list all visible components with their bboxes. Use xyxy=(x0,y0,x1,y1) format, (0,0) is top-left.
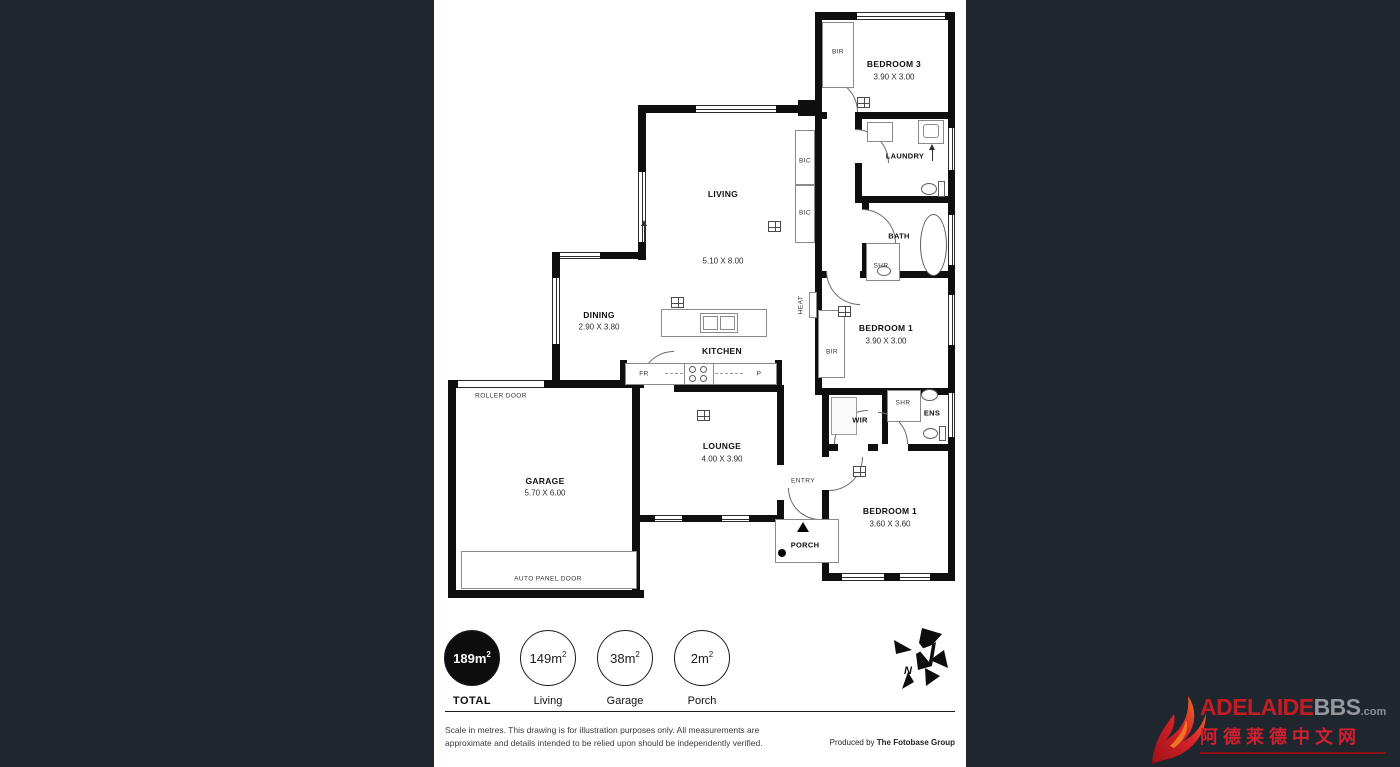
room-dims-bedroom1-upper: 3.90 X 3.00 xyxy=(866,337,907,346)
disclaimer-text: Scale in metres. This drawing is for ill… xyxy=(445,724,763,750)
room-label-laundry: LAUNDRY xyxy=(886,152,925,161)
wall xyxy=(798,100,822,116)
produced-by-prefix: Produced by xyxy=(830,738,877,747)
window xyxy=(948,128,955,170)
wall xyxy=(858,112,955,119)
window xyxy=(655,515,682,522)
arrow-head xyxy=(929,144,935,150)
room-dims-lounge: 4.00 X 3.90 xyxy=(702,455,743,464)
legend-label-living: Living xyxy=(520,695,576,707)
label-entry: ENTRY xyxy=(791,478,815,485)
burner xyxy=(689,366,696,373)
room-label-ens: ENS xyxy=(924,409,940,418)
window xyxy=(560,252,600,259)
legend-total: 189m2 TOTAL xyxy=(444,630,500,707)
room-label-bedroom1-upper: BEDROOM 1 xyxy=(859,323,913,333)
legend-circle-porch: 2m2 xyxy=(674,630,730,686)
wall xyxy=(868,444,878,451)
legend-value-porch: 2m xyxy=(691,651,709,666)
legend-porch: 2m2 Porch xyxy=(674,630,730,707)
label-bic-lower: BIC xyxy=(799,210,811,217)
heat-vent-icon xyxy=(838,306,851,317)
room-dims-living: 5.10 X 8.00 xyxy=(703,257,744,266)
toilet-tank-ens xyxy=(939,426,946,441)
wall xyxy=(908,444,955,451)
footer-divider xyxy=(445,711,955,712)
room-label-bedroom3: BEDROOM 3 xyxy=(867,59,921,69)
window xyxy=(552,278,560,344)
legend-circle-garage: 38m2 xyxy=(597,630,653,686)
legend-sup: 2 xyxy=(709,650,713,659)
legend-living: 149m2 Living xyxy=(520,630,576,707)
window xyxy=(900,573,930,581)
room-dims-garage: 5.70 X 6.00 xyxy=(525,489,566,498)
entry-arrow xyxy=(797,522,809,532)
label-porch: PORCH xyxy=(791,541,820,550)
legend-sup: 2 xyxy=(635,650,639,659)
room-label-kitchen: KITCHEN xyxy=(702,346,742,356)
roller-door-opening xyxy=(458,380,544,388)
burner xyxy=(700,366,707,373)
room-label-lounge: LOUNGE xyxy=(703,441,741,451)
room-dims-bedroom1-lower: 3.60 X 3.60 xyxy=(870,520,911,529)
producer-name: The Fotobase Group xyxy=(877,738,955,747)
label-roller-door: ROLLER DOOR xyxy=(475,393,527,400)
legend-circle-living: 149m2 xyxy=(520,630,576,686)
legend-sup: 2 xyxy=(486,650,490,659)
sink-bowl xyxy=(703,316,718,330)
wall xyxy=(674,385,784,392)
legend-value-living: 149m xyxy=(530,651,563,666)
wall xyxy=(777,385,784,465)
room-label-garage: GARAGE xyxy=(525,476,564,486)
room-dims-bedroom3: 3.90 X 3.00 xyxy=(874,73,915,82)
arrow-head xyxy=(641,220,647,226)
compass-icon: N xyxy=(892,626,948,690)
legend-value-total: 189m xyxy=(453,651,486,666)
label-fridge: FR xyxy=(639,371,648,378)
trough-bowl xyxy=(923,124,939,138)
legend-value-garage: 38m xyxy=(610,651,635,666)
toilet-tank xyxy=(938,181,945,197)
logo-wordmark: ADELAIDEBBS.com xyxy=(1200,694,1386,721)
logo-bbs: BBS xyxy=(1314,694,1361,720)
legend-label-total: TOTAL xyxy=(444,695,500,707)
label-bic-upper: BIC xyxy=(799,158,811,165)
bathtub xyxy=(920,214,947,276)
flame-icon xyxy=(1146,688,1208,766)
disclaimer-line2: approximate and details intended to be r… xyxy=(445,737,763,750)
cooktop xyxy=(684,363,714,385)
robe-bedroom1 xyxy=(818,310,845,378)
room-label-dining: DINING xyxy=(583,310,615,320)
window xyxy=(948,215,955,265)
logo-chinese-tagline: 阿德莱德中文网 xyxy=(1200,723,1386,754)
window xyxy=(696,105,776,113)
heat-vent-icon xyxy=(768,221,781,232)
label-bir-bedroom3: BIR xyxy=(832,49,844,56)
heater-unit xyxy=(809,292,817,318)
label-shr-ens: SHR xyxy=(896,400,911,407)
sink-bowl xyxy=(720,316,735,330)
legend-circle-total: 189m2 xyxy=(444,630,500,686)
toilet-ens xyxy=(923,428,938,439)
disclaimer-line1: Scale in metres. This drawing is for ill… xyxy=(445,724,763,737)
arrow-stem xyxy=(932,150,933,161)
porch-light-dot xyxy=(778,549,786,557)
logo-adelaide: ADELAIDE xyxy=(1200,694,1314,720)
door-arc xyxy=(826,271,860,305)
room-label-bath: BATH xyxy=(888,232,909,241)
wall xyxy=(448,380,456,598)
floorplan-sheet: LIVING 5.10 X 8.00 DINING 2.90 X 3.80 KI… xyxy=(434,0,966,767)
wall xyxy=(448,590,644,598)
room-label-wir: WIR xyxy=(852,416,867,425)
legend-garage: 38m2 Garage xyxy=(597,630,653,707)
heat-vent-icon xyxy=(853,466,866,477)
heat-vent-icon xyxy=(697,410,710,421)
room-label-bedroom1-lower: BEDROOM 1 xyxy=(863,506,917,516)
wall xyxy=(855,112,862,130)
auto-panel-door xyxy=(461,551,637,589)
legend-label-porch: Porch xyxy=(674,695,730,707)
label-shr-bath: SHR xyxy=(874,263,889,270)
label-auto-panel-door: AUTO PANEL DOOR xyxy=(514,576,582,583)
label-pantry: P xyxy=(757,371,762,378)
window xyxy=(857,12,945,20)
burner xyxy=(700,375,707,382)
arrow-stem xyxy=(644,226,645,242)
heat-vent-icon xyxy=(857,97,870,108)
washing-machine xyxy=(867,122,893,142)
floor-plan: LIVING 5.10 X 8.00 DINING 2.90 X 3.80 KI… xyxy=(434,0,966,620)
adelaidebbs-logo: ADELAIDEBBS.com 阿德莱德中文网 xyxy=(1142,686,1400,767)
legend-sup: 2 xyxy=(562,650,566,659)
window xyxy=(948,393,955,437)
wall xyxy=(822,444,838,451)
door-arc xyxy=(788,488,820,520)
compass-north-label: N xyxy=(904,665,913,677)
label-bir-bedroom1: BIR xyxy=(826,349,838,356)
legend-label-garage: Garage xyxy=(597,695,653,707)
window xyxy=(842,573,884,581)
window xyxy=(722,515,749,522)
toilet xyxy=(921,183,937,195)
basin-ens xyxy=(921,389,938,401)
window xyxy=(948,295,955,345)
produced-by: Produced by The Fotobase Group xyxy=(830,738,955,747)
heat-vent-icon xyxy=(671,297,684,308)
room-dims-dining: 2.90 X 3.80 xyxy=(579,323,620,332)
label-heat: HEAT xyxy=(798,296,805,314)
wall xyxy=(855,196,955,203)
logo-tld: .com xyxy=(1361,706,1387,718)
room-label-living: LIVING xyxy=(708,189,738,199)
burner xyxy=(689,375,696,382)
